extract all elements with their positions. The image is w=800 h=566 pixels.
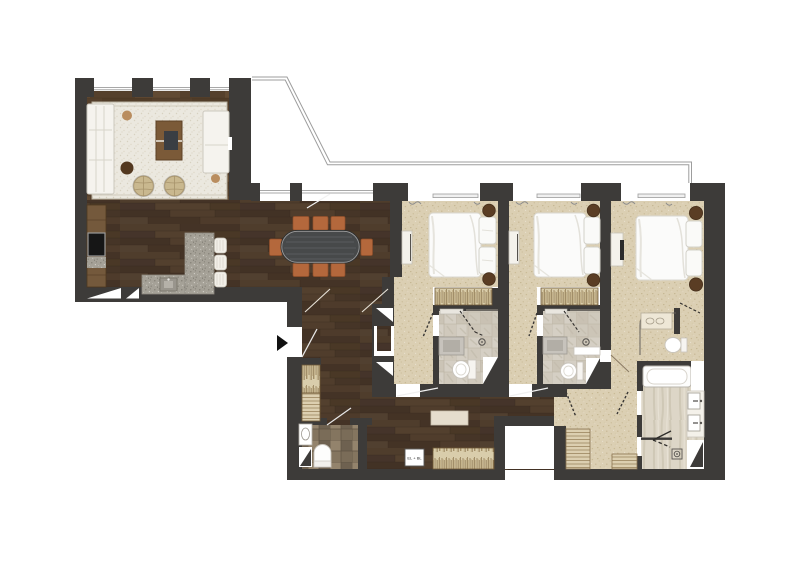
svg-text:EL + BL: EL + BL [407, 456, 422, 461]
